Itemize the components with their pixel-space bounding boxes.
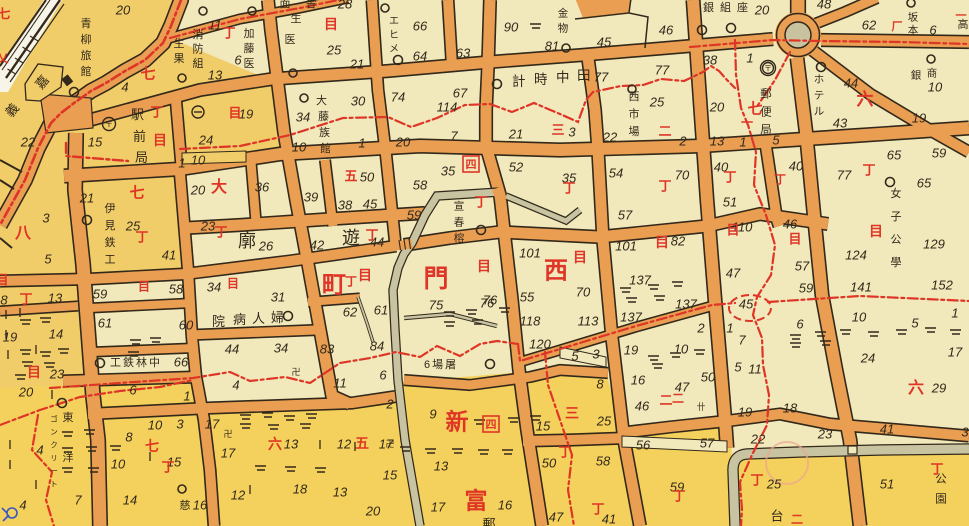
svg-text:40: 40 xyxy=(789,159,804,174)
svg-text:17: 17 xyxy=(205,417,220,432)
svg-text:6: 6 xyxy=(129,383,137,398)
svg-text:20: 20 xyxy=(395,135,411,150)
svg-text:丁: 丁 xyxy=(214,225,227,240)
svg-text:7: 7 xyxy=(74,493,82,508)
svg-text:11: 11 xyxy=(333,376,347,391)
svg-text:65: 65 xyxy=(887,148,902,163)
svg-text:6: 6 xyxy=(796,317,804,332)
svg-text:八: 八 xyxy=(14,225,32,242)
svg-text:2: 2 xyxy=(385,397,394,412)
svg-text:23: 23 xyxy=(49,367,65,382)
svg-text:宣春榕: 宣春榕 xyxy=(454,200,465,245)
svg-text:152: 152 xyxy=(931,278,953,293)
svg-text:〒: 〒 xyxy=(764,64,772,73)
svg-text:時: 時 xyxy=(534,72,548,87)
svg-text:18: 18 xyxy=(293,482,308,497)
svg-text:6: 6 xyxy=(234,53,242,68)
svg-text:5: 5 xyxy=(911,316,919,331)
svg-text:26: 26 xyxy=(258,239,274,254)
svg-text:77: 77 xyxy=(594,70,609,85)
svg-text:113: 113 xyxy=(578,314,599,329)
svg-text:21: 21 xyxy=(79,191,94,206)
svg-text:丁: 丁 xyxy=(474,195,487,210)
svg-text:目: 目 xyxy=(788,232,801,247)
svg-text:〒: 〒 xyxy=(105,120,113,129)
svg-text:18: 18 xyxy=(783,401,798,416)
svg-text:厂: 厂 xyxy=(892,20,903,33)
svg-text:59: 59 xyxy=(407,208,421,223)
svg-text:遊: 遊 xyxy=(342,228,360,248)
svg-text:20: 20 xyxy=(18,385,34,400)
svg-text:駅: 駅 xyxy=(131,107,144,122)
svg-text:1: 1 xyxy=(746,51,753,66)
svg-text:124: 124 xyxy=(845,248,867,263)
svg-text:3: 3 xyxy=(592,347,600,362)
svg-text:丁: 丁 xyxy=(345,274,357,288)
svg-text:消防組: 消防組 xyxy=(193,27,204,70)
svg-text:42: 42 xyxy=(310,238,325,253)
svg-text:66: 66 xyxy=(413,19,428,34)
svg-text:卍: 卍 xyxy=(223,429,232,439)
svg-text:丁: 丁 xyxy=(562,181,575,196)
svg-text:9: 9 xyxy=(429,407,436,422)
svg-text:三: 三 xyxy=(565,405,579,421)
svg-text:23: 23 xyxy=(817,427,833,442)
svg-text:65: 65 xyxy=(917,176,932,191)
svg-text:50: 50 xyxy=(360,170,375,185)
svg-text:二: 二 xyxy=(658,124,671,139)
svg-text:2: 2 xyxy=(696,321,705,336)
svg-text:門: 門 xyxy=(423,265,448,293)
svg-text:17: 17 xyxy=(948,345,963,360)
svg-text:20: 20 xyxy=(115,3,131,18)
svg-text:10: 10 xyxy=(148,418,163,433)
svg-text:21: 21 xyxy=(349,57,364,72)
svg-text:エヒメ: エヒメ xyxy=(389,16,399,55)
svg-text:1: 1 xyxy=(183,389,190,404)
svg-text:工鉄林中: 工鉄林中 xyxy=(110,355,162,369)
svg-text:45: 45 xyxy=(597,35,612,50)
svg-text:七: 七 xyxy=(140,65,155,82)
svg-text:58: 58 xyxy=(596,454,611,469)
svg-text:57: 57 xyxy=(795,259,810,274)
svg-text:25: 25 xyxy=(649,95,665,110)
svg-text:四: 四 xyxy=(466,158,477,171)
svg-text:5: 5 xyxy=(734,360,742,375)
svg-text:7: 7 xyxy=(738,333,746,348)
svg-text:46: 46 xyxy=(783,217,798,232)
svg-text:館: 館 xyxy=(320,141,331,155)
svg-text:90: 90 xyxy=(504,20,519,35)
svg-text:坂本: 坂本 xyxy=(908,12,919,37)
svg-text:6: 6 xyxy=(379,368,387,383)
svg-text:81: 81 xyxy=(545,39,559,54)
svg-text:目: 目 xyxy=(726,223,739,238)
svg-text:12: 12 xyxy=(231,488,246,503)
svg-text:丁: 丁 xyxy=(750,473,763,488)
svg-text:58: 58 xyxy=(413,178,428,193)
svg-text:24: 24 xyxy=(198,133,213,148)
svg-text:31: 31 xyxy=(271,290,285,305)
svg-text:乂: 乂 xyxy=(0,52,10,65)
svg-text:22: 22 xyxy=(602,130,618,145)
svg-text:丁: 丁 xyxy=(222,26,235,41)
svg-text:5: 5 xyxy=(571,349,579,364)
svg-text:10: 10 xyxy=(292,140,307,155)
svg-text:ホテル: ホテル xyxy=(814,74,825,118)
svg-text:4: 4 xyxy=(232,378,239,393)
svg-text:59: 59 xyxy=(799,281,813,296)
svg-text:郵: 郵 xyxy=(482,517,495,526)
svg-text:西市場: 西市場 xyxy=(629,91,640,138)
svg-text:2: 2 xyxy=(678,134,687,149)
svg-text:7: 7 xyxy=(450,129,458,144)
svg-text:50: 50 xyxy=(701,370,716,385)
svg-text:1: 1 xyxy=(726,321,733,336)
svg-text:24: 24 xyxy=(860,351,875,366)
svg-text:66: 66 xyxy=(174,355,189,370)
svg-text:57: 57 xyxy=(618,208,633,223)
svg-text:目: 目 xyxy=(573,249,587,265)
svg-text:19: 19 xyxy=(738,405,752,420)
svg-text:慈: 慈 xyxy=(180,498,191,512)
svg-text:70: 70 xyxy=(675,168,690,183)
svg-text:16: 16 xyxy=(193,498,208,513)
svg-text:36: 36 xyxy=(255,180,270,195)
svg-text:11: 11 xyxy=(208,18,222,33)
svg-text:19: 19 xyxy=(912,111,926,126)
svg-text:22: 22 xyxy=(20,135,36,150)
svg-text:丁: 丁 xyxy=(591,502,604,517)
svg-text:商: 商 xyxy=(927,67,938,80)
svg-text:生: 生 xyxy=(291,11,302,25)
svg-text:34: 34 xyxy=(274,341,288,356)
svg-text:16: 16 xyxy=(498,498,513,513)
svg-text:15: 15 xyxy=(88,135,103,150)
svg-text:六: 六 xyxy=(268,436,282,452)
svg-text:17: 17 xyxy=(431,500,446,515)
svg-text:137: 137 xyxy=(620,310,642,325)
svg-text:加藤医: 加藤医 xyxy=(244,27,255,70)
svg-text:丁: 丁 xyxy=(774,172,786,186)
svg-text:田: 田 xyxy=(577,68,591,83)
svg-text:45: 45 xyxy=(363,197,378,212)
svg-text:中: 中 xyxy=(556,70,570,85)
svg-text:50: 50 xyxy=(542,456,557,471)
svg-text:101: 101 xyxy=(519,246,541,261)
svg-text:11: 11 xyxy=(748,362,762,377)
svg-text:64: 64 xyxy=(413,49,427,64)
svg-text:16: 16 xyxy=(631,373,646,388)
svg-text:34: 34 xyxy=(207,280,221,295)
svg-text:67: 67 xyxy=(453,86,468,101)
svg-text:14: 14 xyxy=(49,327,63,342)
svg-text:19: 19 xyxy=(624,343,638,358)
svg-text:77: 77 xyxy=(837,168,852,183)
svg-text:七: 七 xyxy=(129,184,144,201)
svg-text:一: 一 xyxy=(956,10,967,22)
svg-text:廓: 廓 xyxy=(238,231,256,251)
svg-text:61: 61 xyxy=(98,316,112,331)
svg-text:目: 目 xyxy=(324,16,338,32)
svg-text:新: 新 xyxy=(446,408,469,434)
svg-text:137: 137 xyxy=(629,273,651,288)
svg-text:目: 目 xyxy=(869,223,883,239)
svg-text:10: 10 xyxy=(674,342,689,357)
svg-text:47: 47 xyxy=(726,266,741,281)
svg-text:101: 101 xyxy=(615,239,637,254)
svg-text:院: 院 xyxy=(212,314,225,329)
svg-text:銀組座: 銀組座 xyxy=(703,0,754,14)
svg-text:59: 59 xyxy=(932,146,946,161)
svg-text:丁: 丁 xyxy=(558,445,571,460)
svg-text:丁: 丁 xyxy=(161,460,174,475)
svg-text:3: 3 xyxy=(42,211,50,226)
svg-text:62: 62 xyxy=(862,18,877,33)
svg-text:1: 1 xyxy=(739,135,746,150)
svg-text:22: 22 xyxy=(750,432,766,447)
svg-text:目: 目 xyxy=(227,276,239,290)
svg-text:丁: 丁 xyxy=(19,292,32,307)
svg-text:114: 114 xyxy=(437,100,458,115)
svg-text:町: 町 xyxy=(322,272,346,299)
svg-text:六: 六 xyxy=(908,378,924,397)
svg-text:6: 6 xyxy=(929,23,937,38)
svg-text:57: 57 xyxy=(700,436,715,451)
svg-text:34: 34 xyxy=(296,110,310,125)
svg-text:55: 55 xyxy=(520,290,535,305)
svg-text:銀: 銀 xyxy=(911,69,922,82)
svg-text:46: 46 xyxy=(635,399,650,414)
svg-text:8: 8 xyxy=(596,377,604,392)
svg-text:目: 目 xyxy=(0,273,9,288)
svg-text:21: 21 xyxy=(508,127,523,142)
svg-text:20: 20 xyxy=(754,3,770,18)
svg-text:4: 4 xyxy=(121,80,128,95)
svg-text:婦: 婦 xyxy=(271,310,284,325)
svg-text:46: 46 xyxy=(659,23,674,38)
svg-text:七: 七 xyxy=(747,100,762,117)
svg-text:54: 54 xyxy=(609,166,623,181)
svg-text:47: 47 xyxy=(549,510,564,525)
svg-text:20: 20 xyxy=(190,183,206,198)
svg-text:59: 59 xyxy=(93,287,107,302)
svg-text:4: 4 xyxy=(36,443,43,458)
svg-text:44: 44 xyxy=(225,342,239,357)
svg-text:六: 六 xyxy=(857,89,874,109)
svg-text:6場屠: 6場屠 xyxy=(424,358,458,371)
svg-text:51: 51 xyxy=(880,477,894,492)
svg-text:25: 25 xyxy=(766,477,782,492)
svg-text:118: 118 xyxy=(520,314,541,329)
svg-text:129: 129 xyxy=(923,237,945,252)
svg-text:計: 計 xyxy=(512,74,526,89)
svg-text:70: 70 xyxy=(576,285,591,300)
svg-text:丁: 丁 xyxy=(723,170,736,185)
svg-text:丁: 丁 xyxy=(150,105,163,120)
svg-text:3: 3 xyxy=(961,425,969,440)
svg-text:28: 28 xyxy=(337,0,353,12)
svg-text:41: 41 xyxy=(880,422,894,437)
svg-text:41: 41 xyxy=(162,248,176,263)
svg-text:120: 120 xyxy=(529,337,551,352)
svg-text:62: 62 xyxy=(343,305,358,320)
svg-text:藤: 藤 xyxy=(318,110,329,123)
svg-text:丁: 丁 xyxy=(930,462,943,477)
svg-text:15: 15 xyxy=(536,419,551,434)
svg-text:10: 10 xyxy=(191,153,206,168)
svg-text:丁: 丁 xyxy=(658,179,671,194)
svg-text:58: 58 xyxy=(169,282,184,297)
svg-text:48: 48 xyxy=(817,0,832,12)
svg-text:5: 5 xyxy=(44,252,52,267)
svg-text:1: 1 xyxy=(178,156,185,171)
svg-text:12: 12 xyxy=(337,437,352,452)
svg-text:38: 38 xyxy=(338,198,353,213)
svg-text:4: 4 xyxy=(19,498,26,513)
svg-text:20: 20 xyxy=(709,100,725,115)
svg-text:56: 56 xyxy=(636,438,651,453)
svg-text:目: 目 xyxy=(27,364,41,380)
svg-text:丁: 丁 xyxy=(365,228,378,243)
svg-text:二: 二 xyxy=(672,391,684,405)
svg-text:43: 43 xyxy=(833,116,848,131)
svg-text:人: 人 xyxy=(252,311,265,326)
svg-text:60: 60 xyxy=(179,318,194,333)
svg-text:台: 台 xyxy=(770,509,783,524)
svg-text:医: 医 xyxy=(285,34,296,46)
svg-text:面: 面 xyxy=(280,0,291,10)
svg-text:局: 局 xyxy=(135,150,148,165)
svg-text:病: 病 xyxy=(233,312,246,327)
svg-text:丁: 丁 xyxy=(135,230,148,245)
svg-text:族: 族 xyxy=(319,125,330,139)
svg-text:目: 目 xyxy=(655,234,669,250)
svg-text:82: 82 xyxy=(671,234,686,249)
svg-text:51: 51 xyxy=(723,195,737,210)
svg-text:15: 15 xyxy=(383,468,398,483)
svg-text:29: 29 xyxy=(931,381,946,396)
svg-text:目: 目 xyxy=(358,267,372,283)
svg-text:25: 25 xyxy=(596,414,612,429)
svg-text:目: 目 xyxy=(228,106,241,121)
svg-text:63: 63 xyxy=(456,46,471,61)
svg-text:141: 141 xyxy=(850,280,872,295)
svg-text:1: 1 xyxy=(358,136,365,151)
svg-text:13: 13 xyxy=(333,485,348,500)
svg-text:25: 25 xyxy=(326,43,342,58)
svg-text:大: 大 xyxy=(211,177,227,196)
svg-text:74: 74 xyxy=(391,90,405,105)
svg-text:10: 10 xyxy=(111,457,126,472)
svg-text:13: 13 xyxy=(434,459,449,474)
svg-text:13: 13 xyxy=(284,437,299,452)
svg-text:四: 四 xyxy=(486,418,497,431)
svg-text:1: 1 xyxy=(951,306,958,321)
svg-text:3: 3 xyxy=(568,125,576,140)
svg-text:77: 77 xyxy=(655,63,670,78)
svg-text:目: 目 xyxy=(153,132,167,148)
svg-text:10: 10 xyxy=(852,310,867,325)
svg-text:45: 45 xyxy=(739,297,754,312)
svg-text:76: 76 xyxy=(483,293,498,308)
svg-text:35: 35 xyxy=(441,164,456,179)
svg-text:二: 二 xyxy=(791,512,803,526)
svg-text:13: 13 xyxy=(208,68,223,83)
svg-text:舎: 舎 xyxy=(306,0,317,10)
svg-text:三: 三 xyxy=(551,123,564,138)
svg-text:五: 五 xyxy=(355,435,369,451)
svg-text:13: 13 xyxy=(710,134,725,149)
svg-text:39: 39 xyxy=(304,190,318,205)
svg-text:前: 前 xyxy=(133,129,146,144)
svg-text:目: 目 xyxy=(138,279,150,293)
svg-text:14: 14 xyxy=(123,493,137,508)
svg-text:目: 目 xyxy=(477,258,491,274)
svg-text:137: 137 xyxy=(675,297,697,312)
svg-text:西: 西 xyxy=(544,258,568,285)
svg-text:17: 17 xyxy=(221,446,236,461)
svg-text:七: 七 xyxy=(0,7,11,22)
svg-text:五: 五 xyxy=(344,169,357,184)
svg-text:13: 13 xyxy=(48,291,63,306)
svg-text:5: 5 xyxy=(772,133,780,148)
svg-text:83: 83 xyxy=(320,342,335,357)
svg-text:大: 大 xyxy=(316,93,327,107)
svg-text:20: 20 xyxy=(365,504,381,519)
svg-text:卍: 卍 xyxy=(291,367,300,377)
svg-text:丁: 丁 xyxy=(672,489,685,504)
svg-text:3: 3 xyxy=(176,417,184,432)
svg-text:8: 8 xyxy=(0,293,8,308)
svg-text:七: 七 xyxy=(145,438,159,454)
svg-text:61: 61 xyxy=(374,303,388,318)
svg-text:17: 17 xyxy=(379,437,394,452)
svg-text:二: 二 xyxy=(659,393,672,408)
svg-text:8: 8 xyxy=(125,430,133,445)
svg-text:38: 38 xyxy=(703,53,718,68)
svg-text:富: 富 xyxy=(465,487,488,513)
svg-text:84: 84 xyxy=(370,339,384,354)
svg-text:19: 19 xyxy=(3,330,17,345)
svg-text:卄: 卄 xyxy=(696,402,705,412)
svg-text:52: 52 xyxy=(509,160,524,175)
svg-text:10: 10 xyxy=(928,80,943,95)
svg-text:丁: 丁 xyxy=(862,163,875,178)
svg-text:30: 30 xyxy=(351,94,366,109)
svg-text:44: 44 xyxy=(844,76,858,91)
svg-text:75: 75 xyxy=(429,298,444,313)
